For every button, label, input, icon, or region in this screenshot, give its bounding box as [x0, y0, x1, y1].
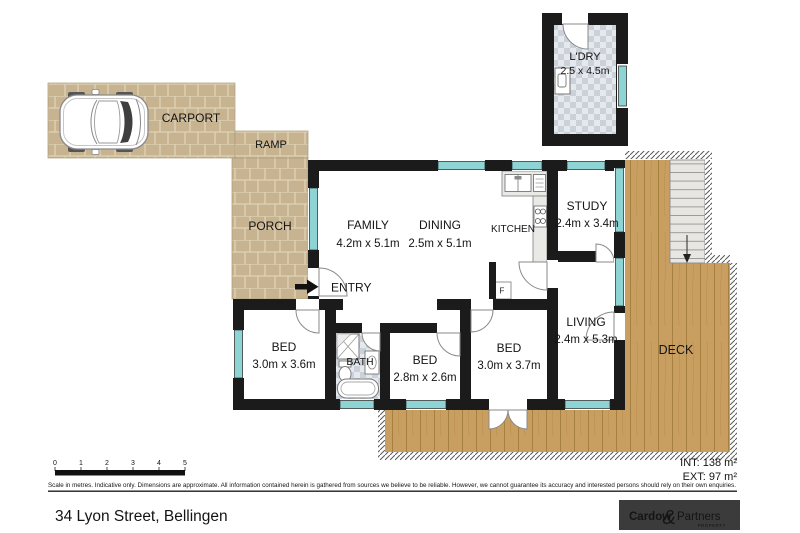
scale-tick-4: 4: [157, 460, 161, 467]
scale-tick-1: 1: [79, 460, 83, 467]
bed1-dims: 3.0m x 3.6m: [252, 359, 315, 371]
deck-label: DECK: [659, 343, 694, 357]
carport-label: CARPORT: [162, 111, 221, 125]
porch-label: PORCH: [248, 219, 291, 233]
deck-edge-hatch: [625, 151, 712, 159]
bed3-label: BED: [497, 341, 522, 355]
property-address: 34 Lyon Street, Bellingen: [55, 508, 228, 525]
floorplan-page: CARPORT RAMP PORCH L'DRY 2.5 x 4.5m FAMI…: [0, 0, 800, 533]
family-label: FAMILY: [347, 218, 389, 232]
scale-tick-2: 2: [105, 460, 109, 467]
kitchen-label: KITCHEN: [491, 224, 535, 235]
laundry-building: [542, 13, 628, 146]
bed2-label: BED: [413, 353, 438, 367]
internal-area: INT: 138 m²: [680, 457, 737, 469]
window: [565, 399, 610, 410]
logo-ampersand-icon: &: [662, 507, 675, 529]
window: [512, 160, 542, 171]
disclaimer-text: Scale in metres. Indicative only. Dimens…: [48, 482, 736, 489]
bed1-label: BED: [272, 340, 297, 354]
deck-edge-hatch: [705, 160, 712, 263]
scale-tick-5: 5: [183, 460, 187, 467]
laundry-label: L'DRY: [569, 51, 601, 63]
deck-edge-hatch: [378, 410, 385, 452]
scale-tick-0: 0: [53, 460, 57, 467]
bath-label: BATH: [346, 356, 373, 368]
deck-edge-hatch: [730, 263, 737, 452]
dining-dims: 2.5m x 5.1m: [408, 238, 471, 250]
study-dims: 2.4m x 3.4m: [555, 218, 618, 230]
study-label: STUDY: [567, 199, 608, 213]
window: [308, 188, 319, 250]
window: [233, 330, 244, 378]
area-totals: INT: 138 m² EXT: 97 m²: [680, 457, 737, 483]
dining-label: DINING: [419, 218, 461, 232]
floorplan-canvas: CARPORT RAMP PORCH L'DRY 2.5 x 4.5m FAMI…: [0, 0, 800, 533]
fridge-label: F: [500, 287, 505, 296]
window: [567, 160, 605, 171]
window: [340, 399, 374, 410]
living-dims: 2.4m x 5.3m: [554, 334, 617, 346]
window: [406, 399, 446, 410]
logo-name-right: Partners: [677, 511, 721, 523]
divider-rule: [48, 491, 737, 492]
family-dims: 4.2m x 5.1m: [336, 238, 399, 250]
laundry-window: [619, 66, 627, 106]
bed3-dims: 3.0m x 3.7m: [477, 360, 540, 372]
scale-bar: 0 1 2 3 4 5: [53, 460, 187, 476]
logo-subtitle: PROPERTY: [698, 523, 726, 528]
deck-edge-hatch: [705, 255, 730, 263]
car-icon: [60, 90, 148, 155]
window: [438, 160, 485, 171]
window: [614, 258, 625, 306]
laundry-dims: 2.5 x 4.5m: [560, 65, 609, 77]
agency-logo: Cardow & Partners PROPERTY: [619, 500, 740, 530]
entry-label: ENTRY: [331, 281, 371, 295]
ramp-label: RAMP: [255, 139, 287, 151]
scale-tick-3: 3: [131, 460, 135, 467]
bed2-dims: 2.8m x 2.6m: [393, 372, 456, 384]
living-label: LIVING: [566, 315, 605, 329]
